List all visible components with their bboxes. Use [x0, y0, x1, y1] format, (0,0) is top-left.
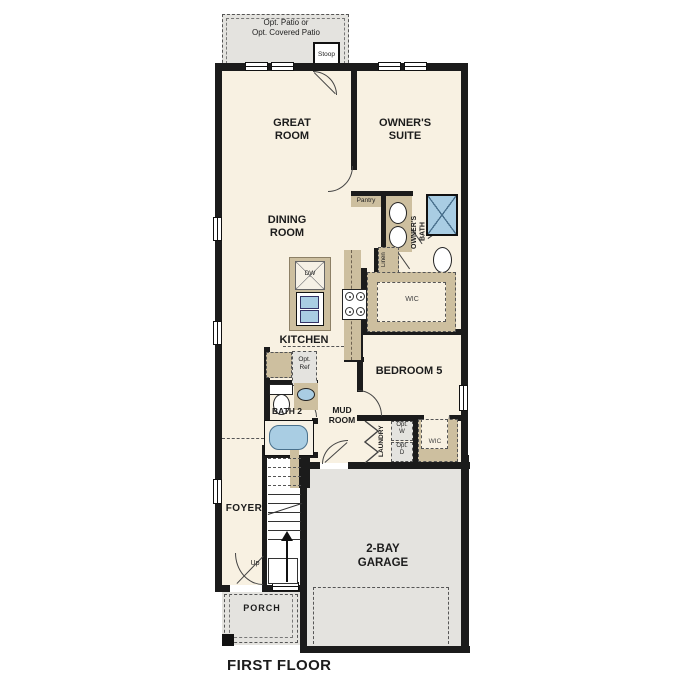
- dining-room-label: DINING ROOM: [254, 214, 320, 241]
- bath2-label: BATH 2: [264, 406, 310, 416]
- tub-basin: [269, 425, 308, 450]
- up-label: Up: [246, 560, 264, 569]
- cased-opening: [222, 438, 264, 439]
- up-arrow: [286, 540, 288, 582]
- burner-icon: [356, 307, 365, 316]
- owners-shower: [426, 194, 458, 236]
- page-title: FIRST FLOOR: [227, 657, 367, 675]
- bed5-wic-label: WIC: [422, 438, 448, 446]
- bath2-cabinet: [266, 352, 292, 378]
- window: [213, 321, 222, 345]
- window: [378, 62, 401, 71]
- window: [459, 385, 468, 411]
- porch-inner-outline: [229, 594, 293, 638]
- stair-tread: [268, 494, 301, 495]
- up-arrow-head: [281, 531, 293, 541]
- window: [271, 62, 294, 71]
- burner-icon: [345, 307, 354, 316]
- wall: [215, 585, 230, 592]
- kitchen-sink: [296, 292, 324, 326]
- bedroom5-label: BEDROOM 5: [362, 365, 456, 378]
- laundry-label: LAUNDRY: [378, 419, 390, 463]
- bath2-sink: [297, 388, 315, 401]
- bath2-tub: [264, 420, 314, 456]
- porch-label: PORCH: [238, 603, 286, 614]
- window: [213, 479, 222, 504]
- pantry-label: Pantry: [350, 197, 382, 205]
- window: [404, 62, 427, 71]
- owners-wic-label: WIC: [398, 296, 426, 305]
- stair-landing: [268, 558, 298, 584]
- great-room-label: GREAT ROOM: [258, 117, 326, 144]
- opt-washer-label: Opt. W: [391, 422, 413, 437]
- stoop-label: Stoop: [314, 51, 339, 59]
- owners-sink: [389, 202, 407, 224]
- stair-tread: [268, 485, 301, 486]
- porch-post: [222, 634, 234, 646]
- cooktop: [342, 289, 367, 320]
- opt-ref-label: Opt. Ref: [292, 356, 317, 372]
- mud-room-label: MUD ROOM: [321, 405, 363, 426]
- owners-sink: [389, 226, 407, 248]
- wall: [461, 455, 469, 653]
- linen-label: Linen: [381, 247, 396, 273]
- stair-tread: [268, 521, 301, 522]
- burner-icon: [345, 292, 354, 301]
- stair-tread: [268, 458, 301, 459]
- floor-plan: Opt. Patio or Opt. Covered Patio Stoop: [0, 0, 687, 687]
- toilet-bowl: [433, 247, 452, 273]
- sink-basin: [300, 310, 319, 323]
- foyer-label: FOYER: [225, 503, 263, 515]
- opt-patio-label: Opt. Patio or Opt. Covered Patio: [224, 18, 348, 38]
- dishwasher-label: DW: [295, 270, 325, 278]
- stair-tread: [268, 467, 301, 468]
- garage-door-outline: [313, 587, 449, 644]
- opt-dryer-label: Opt. D: [391, 443, 413, 458]
- window: [245, 62, 268, 71]
- stair-wall-trim: [290, 450, 299, 488]
- garage-label: 2-BAY GARAGE: [345, 542, 421, 570]
- burner-icon: [356, 292, 365, 301]
- kitchen-label: KITCHEN: [276, 334, 332, 347]
- owners-suite-label: OWNER'S SUITE: [370, 117, 440, 144]
- wall: [300, 646, 470, 653]
- wall: [348, 462, 470, 469]
- wall: [351, 71, 357, 170]
- stair-tread: [268, 476, 301, 477]
- sink-basin: [300, 296, 319, 309]
- window: [213, 217, 222, 241]
